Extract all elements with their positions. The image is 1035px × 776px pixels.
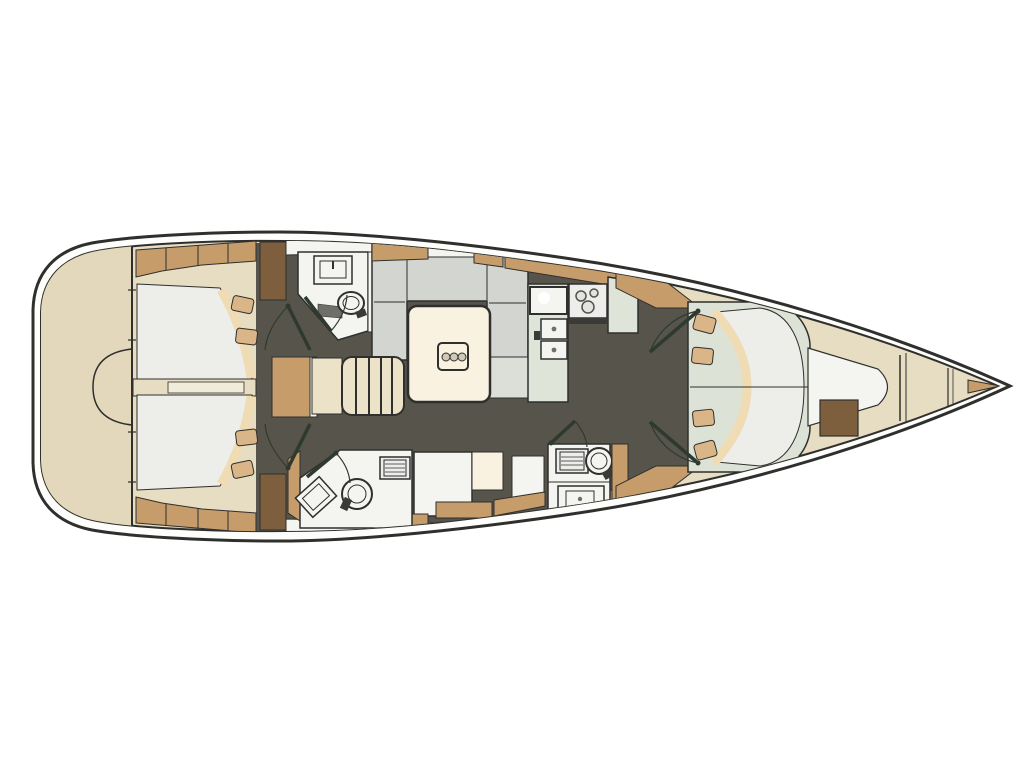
hinge-dot <box>286 304 291 309</box>
stern-platform <box>41 243 136 529</box>
drain <box>552 348 557 353</box>
burner <box>590 289 598 297</box>
hinge-dot <box>696 309 701 314</box>
nav-teak-strip <box>436 502 492 518</box>
hinge-dot <box>334 451 339 456</box>
aft-wardrobe-bottom <box>260 474 286 530</box>
yacht-floorplan <box>0 0 1035 776</box>
salon-bench <box>487 357 528 398</box>
cup-hole <box>442 353 450 361</box>
stove-front <box>569 318 607 324</box>
drain <box>578 497 582 501</box>
cup-hole <box>450 353 458 361</box>
floorplan-canvas <box>0 0 1035 776</box>
burner <box>576 291 586 301</box>
cup-hole <box>458 353 466 361</box>
burner <box>582 301 594 313</box>
pillow <box>235 429 258 446</box>
bow-seat <box>820 400 858 436</box>
stairs <box>342 357 404 415</box>
aft-center-locker <box>168 382 244 393</box>
sink-highlight <box>538 292 550 304</box>
hinge-dot <box>286 466 291 471</box>
center-cabinet <box>272 357 310 417</box>
pillow <box>235 328 258 345</box>
companionway <box>312 357 404 415</box>
stairs-landing <box>312 358 342 414</box>
pillow <box>691 347 714 365</box>
hinge-dot <box>549 441 554 446</box>
drain <box>552 327 557 332</box>
hinge-dot <box>696 461 701 466</box>
galley-faucet <box>534 331 540 340</box>
stern-platform-surface <box>41 243 132 529</box>
nav-seat <box>472 452 503 490</box>
pillow <box>692 409 715 427</box>
aft-wardrobe-top <box>260 242 286 300</box>
